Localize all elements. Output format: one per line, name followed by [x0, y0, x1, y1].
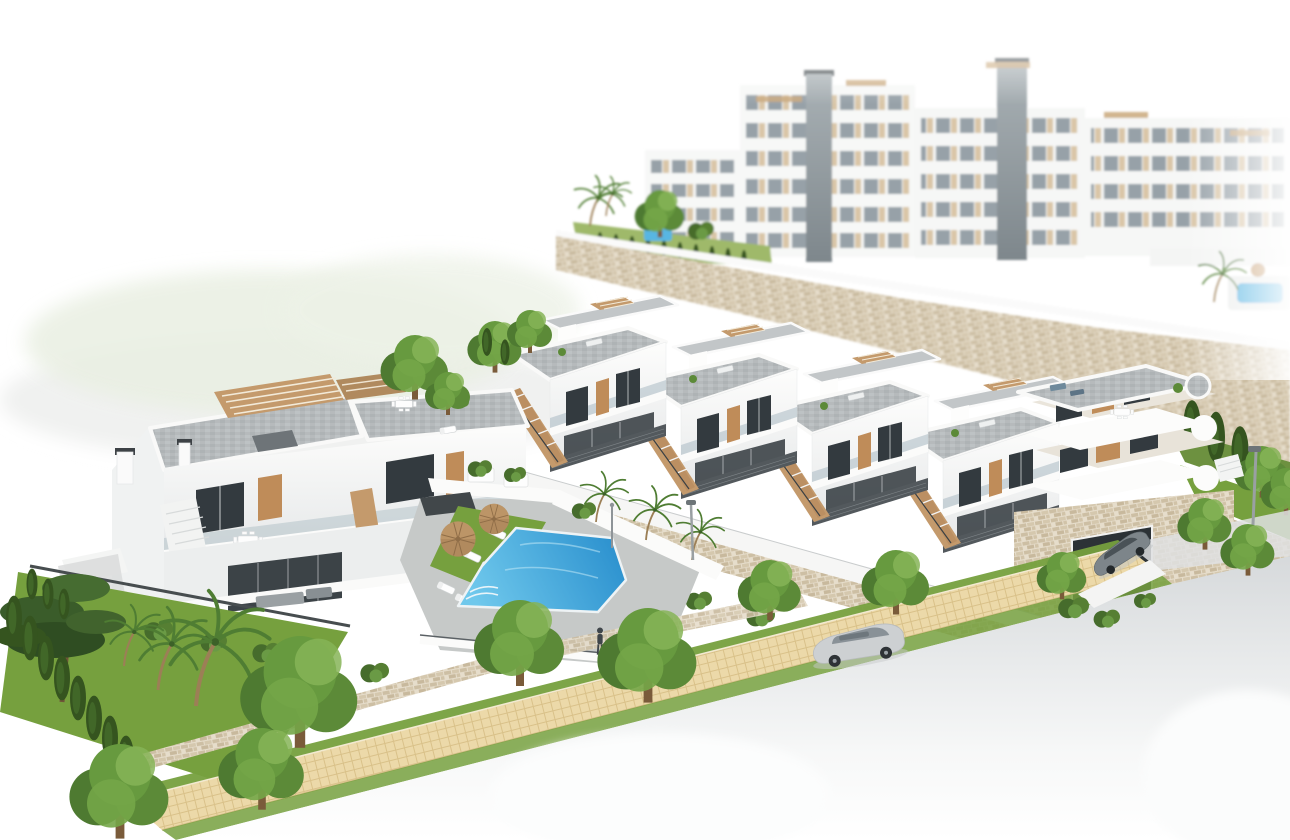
parasol-2	[479, 504, 509, 534]
parasol-1	[440, 521, 475, 556]
scene-canvas	[0, 0, 1290, 840]
render-image	[0, 0, 1290, 840]
top-fade	[0, 0, 1290, 105]
right-fade	[1185, 0, 1290, 380]
